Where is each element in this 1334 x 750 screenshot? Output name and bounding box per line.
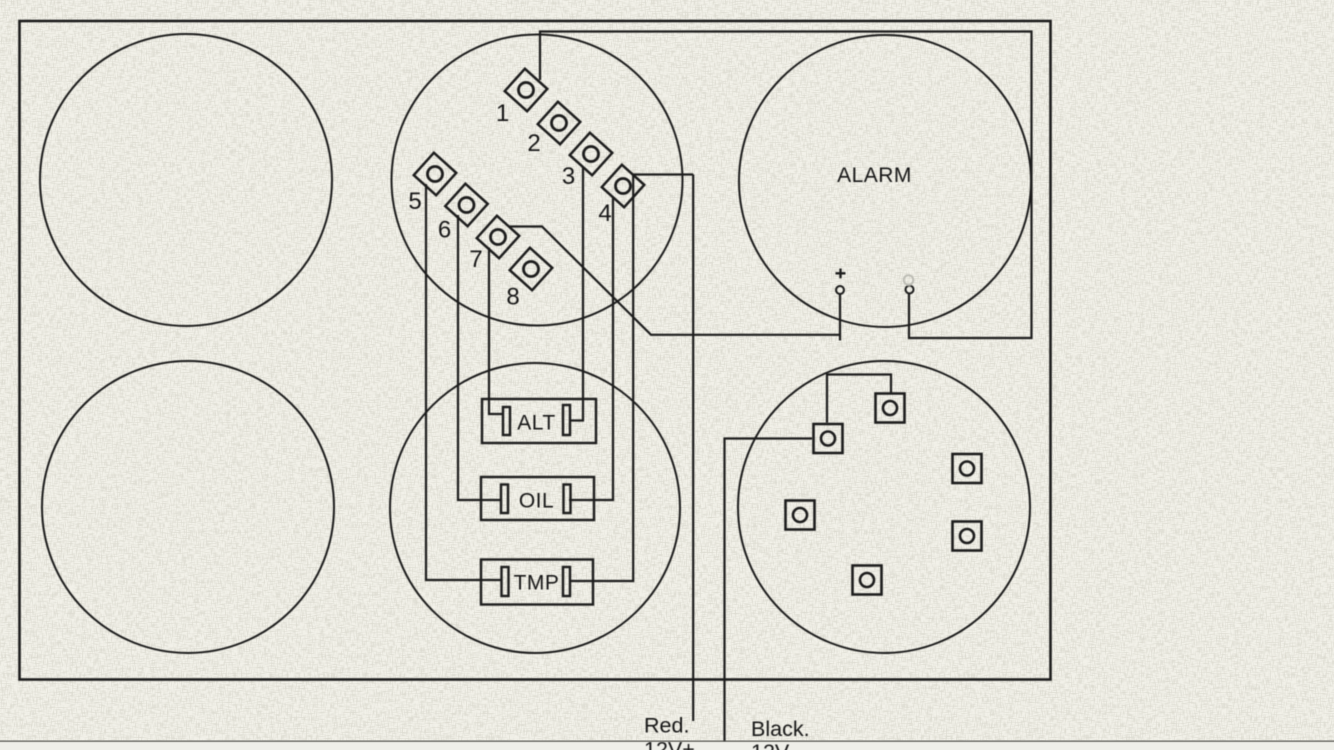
svg-text:Black.: Black. [751,717,810,741]
svg-text:OIL: OIL [519,490,554,513]
svg-text:4: 4 [598,200,611,227]
svg-text:8: 8 [506,284,519,311]
svg-text:ALT: ALT [517,412,555,435]
svg-text:ALARM: ALARM [837,164,912,187]
svg-text:7: 7 [469,246,482,273]
svg-text:2: 2 [527,130,540,157]
svg-text:6: 6 [438,217,451,244]
svg-text:1: 1 [496,100,509,127]
svg-text:Red.: Red. [644,714,689,738]
svg-text:12V-: 12V- [751,740,795,750]
svg-text:5: 5 [408,188,421,215]
svg-text:3: 3 [562,163,575,190]
svg-text:12V+: 12V+ [644,738,695,750]
svg-text:TMP: TMP [514,572,560,595]
